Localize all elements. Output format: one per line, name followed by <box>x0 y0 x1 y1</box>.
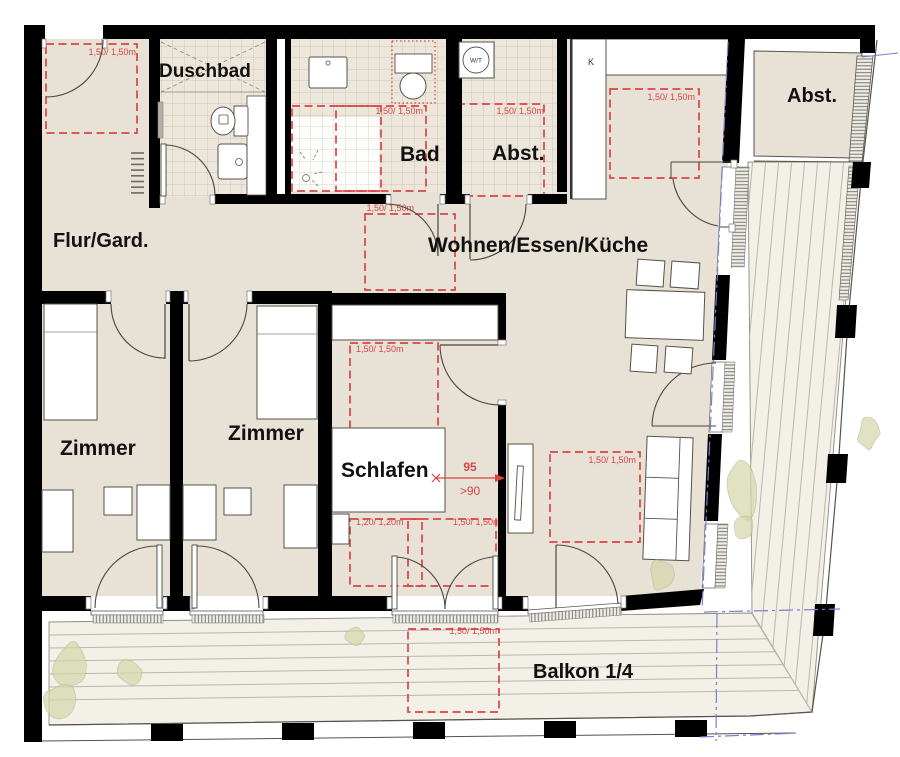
svg-text:1,50/ 1,50m: 1,50/ 1,50m <box>449 626 497 636</box>
svg-text:K: K <box>588 57 594 67</box>
svg-text:1,50/ 1,50m: 1,50/ 1,50m <box>496 106 544 116</box>
svg-text:1,50/ 1,50m: 1,50/ 1,50m <box>375 106 423 116</box>
svg-text:Balkon 1/4: Balkon 1/4 <box>533 661 634 683</box>
svg-text:1,50/ 1,50m: 1,50/ 1,50m <box>88 47 136 57</box>
svg-text:Abst.: Abst. <box>787 85 837 107</box>
svg-text:1,20/ 1,20m: 1,20/ 1,20m <box>356 517 404 527</box>
svg-text:Duschbad: Duschbad <box>159 61 251 82</box>
svg-text:Wohnen/Essen/Küche: Wohnen/Essen/Küche <box>428 234 648 257</box>
svg-text:95: 95 <box>463 460 477 474</box>
svg-text:Zimmer: Zimmer <box>60 437 136 460</box>
svg-text:Abst.: Abst. <box>492 142 545 165</box>
svg-text:>90: >90 <box>460 484 481 498</box>
svg-text:1,50/ 1,50m: 1,50/ 1,50m <box>453 517 501 527</box>
svg-text:Bad: Bad <box>400 143 440 166</box>
svg-text:W/T: W/T <box>470 58 482 65</box>
svg-text:Schlafen: Schlafen <box>341 459 429 482</box>
svg-text:Flur/Gard.: Flur/Gard. <box>53 230 149 252</box>
svg-text:1,50/ 1,50m: 1,50/ 1,50m <box>588 455 636 465</box>
svg-text:Zimmer: Zimmer <box>228 422 304 445</box>
svg-text:1,50/ 1,50m: 1,50/ 1,50m <box>647 92 695 102</box>
svg-text:1,50/ 1,50m: 1,50/ 1,50m <box>356 344 404 354</box>
